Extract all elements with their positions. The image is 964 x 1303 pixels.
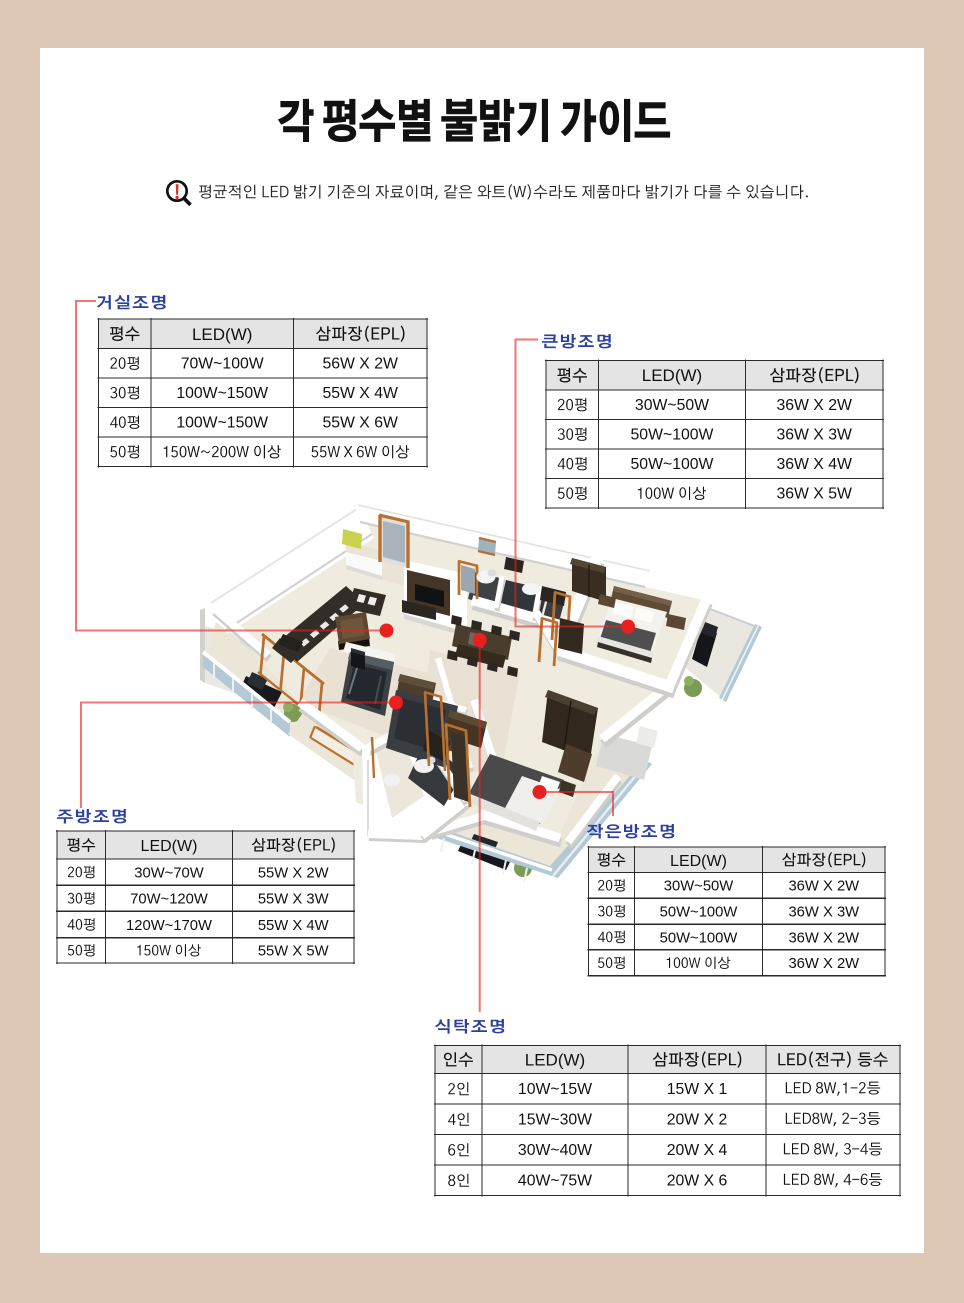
svg-text:36W X 4W: 36W X 4W bbox=[776, 456, 852, 473]
svg-text:55W X 2W: 55W X 2W bbox=[258, 865, 329, 881]
svg-text:LED(W): LED(W) bbox=[670, 853, 727, 870]
svg-text:70W~120W: 70W~120W bbox=[130, 892, 208, 908]
svg-text:55W X 5W: 55W X 5W bbox=[258, 944, 329, 960]
svg-text:20W X 4: 20W X 4 bbox=[667, 1142, 728, 1159]
svg-text:LED(W): LED(W) bbox=[141, 838, 198, 855]
svg-text:56W X 2W: 56W X 2W bbox=[322, 356, 398, 373]
svg-text:36W X 3W: 36W X 3W bbox=[776, 427, 852, 444]
svg-text:50W~100W: 50W~100W bbox=[660, 930, 738, 946]
svg-text:10W~15W: 10W~15W bbox=[518, 1081, 592, 1098]
svg-text:100W~150W: 100W~150W bbox=[176, 415, 268, 432]
svg-text:55W X 3W: 55W X 3W bbox=[258, 892, 329, 908]
svg-text:15W~30W: 15W~30W bbox=[518, 1112, 592, 1129]
svg-text:30W~50W: 30W~50W bbox=[635, 397, 709, 414]
svg-text:30W~40W: 30W~40W bbox=[518, 1142, 592, 1159]
svg-text:36W X 2W: 36W X 2W bbox=[788, 930, 859, 946]
svg-text:50W~100W: 50W~100W bbox=[660, 905, 738, 921]
svg-text:55W X 4W: 55W X 4W bbox=[258, 918, 329, 934]
svg-text:36W X 2W: 36W X 2W bbox=[788, 956, 859, 972]
svg-text:30W~50W: 30W~50W bbox=[664, 879, 734, 895]
svg-text:LED(W): LED(W) bbox=[192, 325, 252, 344]
svg-text:30W~70W: 30W~70W bbox=[134, 865, 204, 881]
svg-text:LED(W): LED(W) bbox=[525, 1051, 585, 1070]
svg-text:20W X 6: 20W X 6 bbox=[667, 1173, 728, 1190]
svg-text:70W~100W: 70W~100W bbox=[181, 356, 264, 373]
svg-text:40W~75W: 40W~75W bbox=[518, 1173, 592, 1190]
svg-text:LED(W): LED(W) bbox=[642, 366, 702, 385]
svg-text:36W X 3W: 36W X 3W bbox=[788, 905, 859, 921]
svg-text:36W X 2W: 36W X 2W bbox=[788, 879, 859, 895]
svg-text:36W X 5W: 36W X 5W bbox=[776, 486, 852, 503]
svg-text:55W X 4W: 55W X 4W bbox=[322, 385, 398, 402]
svg-text:15W X 1: 15W X 1 bbox=[667, 1081, 728, 1098]
svg-text:100W~150W: 100W~150W bbox=[176, 385, 268, 402]
svg-text:120W~170W: 120W~170W bbox=[126, 918, 212, 934]
svg-text:36W X 2W: 36W X 2W bbox=[776, 397, 852, 414]
svg-text:20W X 2: 20W X 2 bbox=[667, 1112, 728, 1129]
svg-text:50W~100W: 50W~100W bbox=[631, 456, 714, 473]
svg-text:50W~100W: 50W~100W bbox=[631, 427, 714, 444]
svg-text:55W X 6W: 55W X 6W bbox=[322, 415, 398, 432]
